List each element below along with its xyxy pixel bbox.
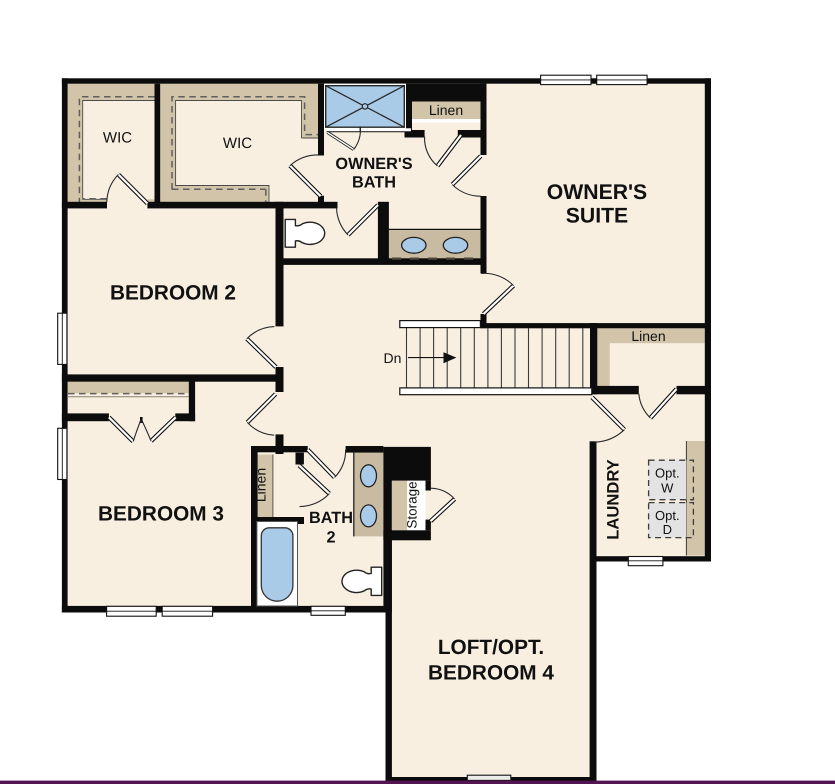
svg-text:Opt.: Opt.: [655, 508, 680, 523]
svg-text:Linen: Linen: [631, 328, 665, 344]
svg-text:WIC: WIC: [223, 135, 252, 152]
svg-text:OWNER'S: OWNER'S: [335, 155, 412, 173]
svg-text:OWNER'S: OWNER'S: [547, 181, 647, 204]
svg-text:Linen: Linen: [429, 102, 463, 118]
svg-text:2: 2: [326, 529, 335, 547]
svg-text:W: W: [661, 481, 674, 496]
svg-text:SUITE: SUITE: [566, 204, 628, 227]
svg-text:Opt.: Opt.: [655, 466, 680, 481]
svg-text:BATH: BATH: [309, 509, 353, 527]
svg-text:BEDROOM 2: BEDROOM 2: [110, 281, 236, 304]
svg-text:WIC: WIC: [103, 130, 132, 147]
svg-text:BEDROOM 4: BEDROOM 4: [428, 661, 554, 684]
svg-text:BEDROOM 3: BEDROOM 3: [98, 502, 224, 525]
svg-text:D: D: [663, 522, 672, 537]
svg-text:LAUNDRY: LAUNDRY: [603, 459, 622, 540]
svg-text:Linen: Linen: [253, 468, 269, 502]
svg-text:Dn: Dn: [384, 350, 402, 366]
svg-text:Storage: Storage: [405, 481, 420, 528]
svg-text:BATH: BATH: [352, 174, 396, 192]
svg-text:LOFT/OPT.: LOFT/OPT.: [438, 636, 544, 659]
